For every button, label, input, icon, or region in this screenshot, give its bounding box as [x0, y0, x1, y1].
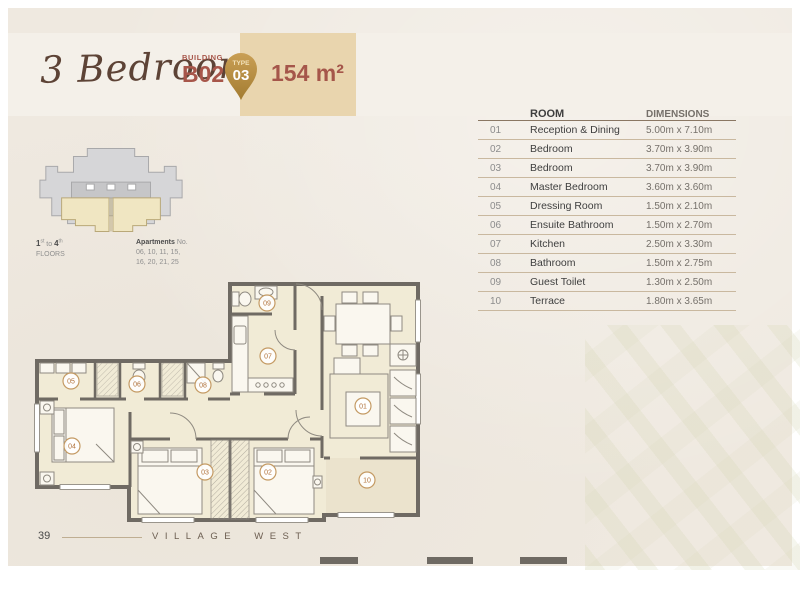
row-room-name: Bathroom	[530, 257, 646, 269]
svg-text:08: 08	[199, 383, 207, 390]
key-plan-diagram	[32, 146, 190, 238]
dimensions-table: ROOM DIMENSIONS 01Reception & Dining5.00…	[478, 106, 736, 311]
badge-type-value: 03	[233, 67, 250, 84]
table-row: 02Bedroom3.70m x 3.90m	[478, 140, 736, 159]
floor-plan: 01 02 03 04 05 06 07 08 09 10	[30, 282, 430, 529]
room-label-08: 08	[195, 377, 211, 393]
adjacent-plan-wall-stub	[427, 557, 473, 564]
row-dimension: 1.50m x 2.75m	[646, 258, 736, 269]
table-row: 08Bathroom1.50m x 2.75m	[478, 254, 736, 273]
row-number: 10	[478, 296, 530, 307]
row-dimension: 1.30m x 2.50m	[646, 277, 736, 288]
table-row: 06Ensuite Bathroom1.50m x 2.70m	[478, 216, 736, 235]
row-room-name: Ensuite Bathroom	[530, 219, 646, 231]
room-label-02: 02	[260, 464, 276, 480]
key-plan-apartments: Apartments No. 06, 10, 11, 15, 16, 20, 2…	[136, 238, 188, 268]
room-label-03: 03	[197, 464, 213, 480]
table-row: 01Reception & Dining5.00m x 7.10m	[478, 121, 736, 140]
badge-type-label: TYPE	[233, 60, 251, 67]
brochure-page: 3 Bedroom BUILDING B02 TYPE 03 154 m² 1s	[0, 0, 800, 600]
row-dimension: 3.70m x 3.90m	[646, 144, 736, 155]
building-group: BUILDING B02	[182, 54, 224, 86]
svg-text:05: 05	[67, 379, 75, 386]
floors-to-sup: th	[59, 239, 63, 245]
room-label-05: 05	[63, 373, 79, 389]
svg-text:01: 01	[359, 404, 367, 411]
room-label-10: 10	[359, 472, 375, 488]
svg-text:09: 09	[263, 301, 271, 308]
adjacent-plan-wall-stub	[520, 557, 567, 564]
table-row: 03Bedroom3.70m x 3.90m	[478, 159, 736, 178]
row-number: 02	[478, 144, 530, 155]
bedroom3-bed	[131, 441, 202, 514]
dressing-room-shelves	[40, 363, 86, 373]
apartments-line1: 06, 10, 11, 15,	[136, 248, 188, 258]
apartments-line2: 16, 20, 21, 25	[136, 258, 188, 268]
svg-text:04: 04	[68, 444, 76, 451]
row-dimension: 1.50m x 2.10m	[646, 201, 736, 212]
type-badge: TYPE 03	[222, 50, 260, 102]
row-number: 08	[478, 258, 530, 269]
table-header-dimensions: DIMENSIONS	[646, 109, 736, 120]
room-label-06: 06	[129, 376, 145, 392]
room-label-07: 07	[260, 348, 276, 364]
svg-text:02: 02	[264, 470, 272, 477]
row-room-name: Reception & Dining	[530, 124, 646, 136]
table-header-room: ROOM	[530, 108, 646, 120]
row-room-name: Bedroom	[530, 162, 646, 174]
floors-label: FLOORS	[36, 250, 65, 260]
row-room-name: Kitchen	[530, 238, 646, 250]
table-row: 07Kitchen2.50m x 3.30m	[478, 235, 736, 254]
adjacent-plan-wall-stub	[320, 557, 358, 564]
table-row: 09Guest Toilet1.30m x 2.50m	[478, 273, 736, 292]
row-dimension: 5.00m x 7.10m	[646, 125, 736, 136]
building-value: B02	[182, 63, 224, 86]
row-number: 03	[478, 163, 530, 174]
row-room-name: Bedroom	[530, 143, 646, 155]
room-label-04: 04	[64, 438, 80, 454]
row-number: 06	[478, 220, 530, 231]
row-number: 05	[478, 201, 530, 212]
row-number: 01	[478, 125, 530, 136]
row-number: 07	[478, 239, 530, 250]
row-dimension: 2.50m x 3.30m	[646, 239, 736, 250]
row-dimension: 3.60m x 3.60m	[646, 182, 736, 193]
row-dimension: 3.70m x 3.90m	[646, 163, 736, 174]
apartments-no-word: No.	[175, 239, 188, 246]
footer-project-name: VILLAGE WEST	[152, 531, 308, 542]
row-room-name: Master Bedroom	[530, 181, 646, 193]
row-number: 09	[478, 277, 530, 288]
table-row: 10Terrace1.80m x 3.65m	[478, 292, 736, 311]
room-label-01: 01	[355, 398, 371, 414]
footer-divider	[62, 537, 142, 538]
row-dimension: 1.80m x 3.65m	[646, 296, 736, 307]
apartments-label: Apartments	[136, 239, 175, 246]
key-plan-floors: 1st to 4th FLOORS	[36, 238, 65, 260]
footer-page-number: 39	[38, 530, 50, 542]
room-label-09: 09	[259, 295, 275, 311]
row-dimension: 1.50m x 2.70m	[646, 220, 736, 231]
svg-text:06: 06	[133, 382, 141, 389]
svg-text:10: 10	[363, 478, 371, 485]
svg-text:03: 03	[201, 470, 209, 477]
floors-to-word: to	[44, 241, 54, 248]
svg-text:07: 07	[264, 354, 272, 361]
table-header: ROOM DIMENSIONS	[478, 106, 736, 121]
table-row: 05Dressing Room1.50m x 2.10m	[478, 197, 736, 216]
row-number: 04	[478, 182, 530, 193]
row-room-name: Terrace	[530, 295, 646, 307]
row-room-name: Guest Toilet	[530, 276, 646, 288]
bedroom2-bed	[254, 448, 322, 514]
core-shafts	[86, 184, 135, 190]
area-value: 154 m²	[271, 60, 344, 87]
table-row: 04Master Bedroom3.60m x 3.60m	[478, 178, 736, 197]
row-room-name: Dressing Room	[530, 200, 646, 212]
